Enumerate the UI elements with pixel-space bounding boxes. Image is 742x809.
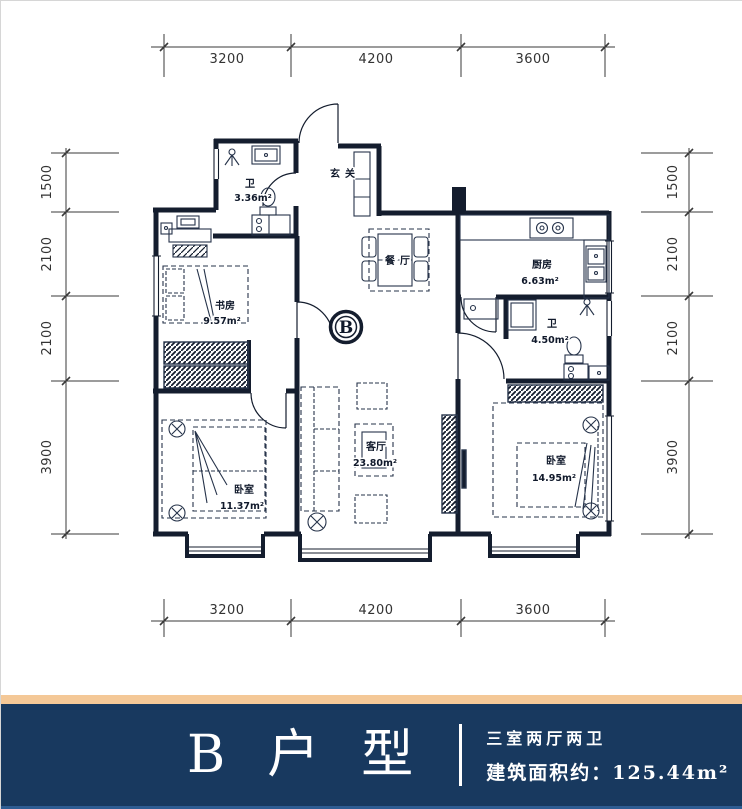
dim-right-1: 1500 (666, 164, 681, 199)
floorplan-drawing: 3200 4200 3600 3200 4200 3600 1500 2100 … (1, 1, 742, 696)
tv-cabinet (442, 415, 466, 513)
bedroom-right-furniture (493, 385, 603, 519)
footer-divider (459, 724, 462, 786)
dim-top-2: 4200 (358, 52, 393, 67)
kitchen-door (461, 297, 496, 332)
dim-left-1: 1500 (40, 164, 55, 199)
study-wardrobe (164, 342, 248, 388)
dim-bottom-1: 3200 (209, 603, 244, 618)
label-entry: 玄关 (330, 167, 360, 180)
unit-layout-text: 三室两厅两卫 (486, 725, 729, 749)
dim-bottom-3: 3600 (515, 603, 550, 618)
dim-right-3: 2100 (666, 320, 681, 355)
label-bath-top-area: 3.36m² (234, 193, 272, 204)
dimension-lines (51, 34, 713, 637)
living-furniture (301, 383, 393, 531)
unit-area-text: 建筑面积约：125.44m² (486, 758, 729, 785)
study-door (297, 302, 333, 338)
entry-door (299, 104, 338, 143)
column (452, 187, 466, 215)
label-study: 书房 (215, 299, 235, 312)
label-bedroom-right-area: 14.95m² (532, 473, 576, 484)
label-living-area: 23.80m² (353, 458, 397, 469)
label-living: 客厅 (365, 440, 386, 453)
label-study-area: 9.57m² (203, 316, 241, 327)
unit-marker-letter: B (339, 318, 353, 338)
floorplan-page: 3200 4200 3600 3200 4200 3600 1500 2100 … (0, 0, 742, 809)
dim-right-2: 2100 (666, 236, 681, 271)
dim-top-1: 3200 (209, 52, 244, 67)
footer: B户型 三室两厅两卫 建筑面积约：125.44m² (1, 704, 742, 806)
unit-marker: B (331, 312, 362, 343)
shoe-cabinet (354, 152, 370, 216)
bath-top-fixtures (225, 146, 290, 235)
label-dining: 餐厅 (384, 254, 415, 267)
dim-left-2: 2100 (40, 236, 55, 271)
label-bedroom-left-area: 11.37m² (220, 501, 264, 512)
label-bath-top: 卫 (245, 178, 255, 190)
label-bedroom-left: 卧室 (234, 483, 254, 496)
footer-accent-stripe (1, 695, 742, 704)
dim-left-4: 3900 (40, 439, 55, 474)
dim-bottom-2: 4200 (358, 603, 393, 618)
label-bedroom-right: 卧室 (546, 454, 566, 467)
dim-right-4: 3900 (666, 439, 681, 474)
vestibule-door (458, 333, 504, 379)
label-kitchen: 厨房 (532, 258, 552, 271)
unit-title: B户型 (187, 729, 455, 781)
dim-top-3: 3600 (515, 52, 550, 67)
footer-subtitle: 三室两厅两卫 建筑面积约：125.44m² (486, 725, 729, 785)
dim-left-3: 2100 (40, 320, 55, 355)
bedroom-left-door (251, 393, 286, 428)
label-bath-right-area: 4.50m² (531, 335, 569, 346)
label-kitchen-area: 6.63m² (521, 276, 559, 287)
label-bath-right: 卫 (547, 318, 557, 330)
